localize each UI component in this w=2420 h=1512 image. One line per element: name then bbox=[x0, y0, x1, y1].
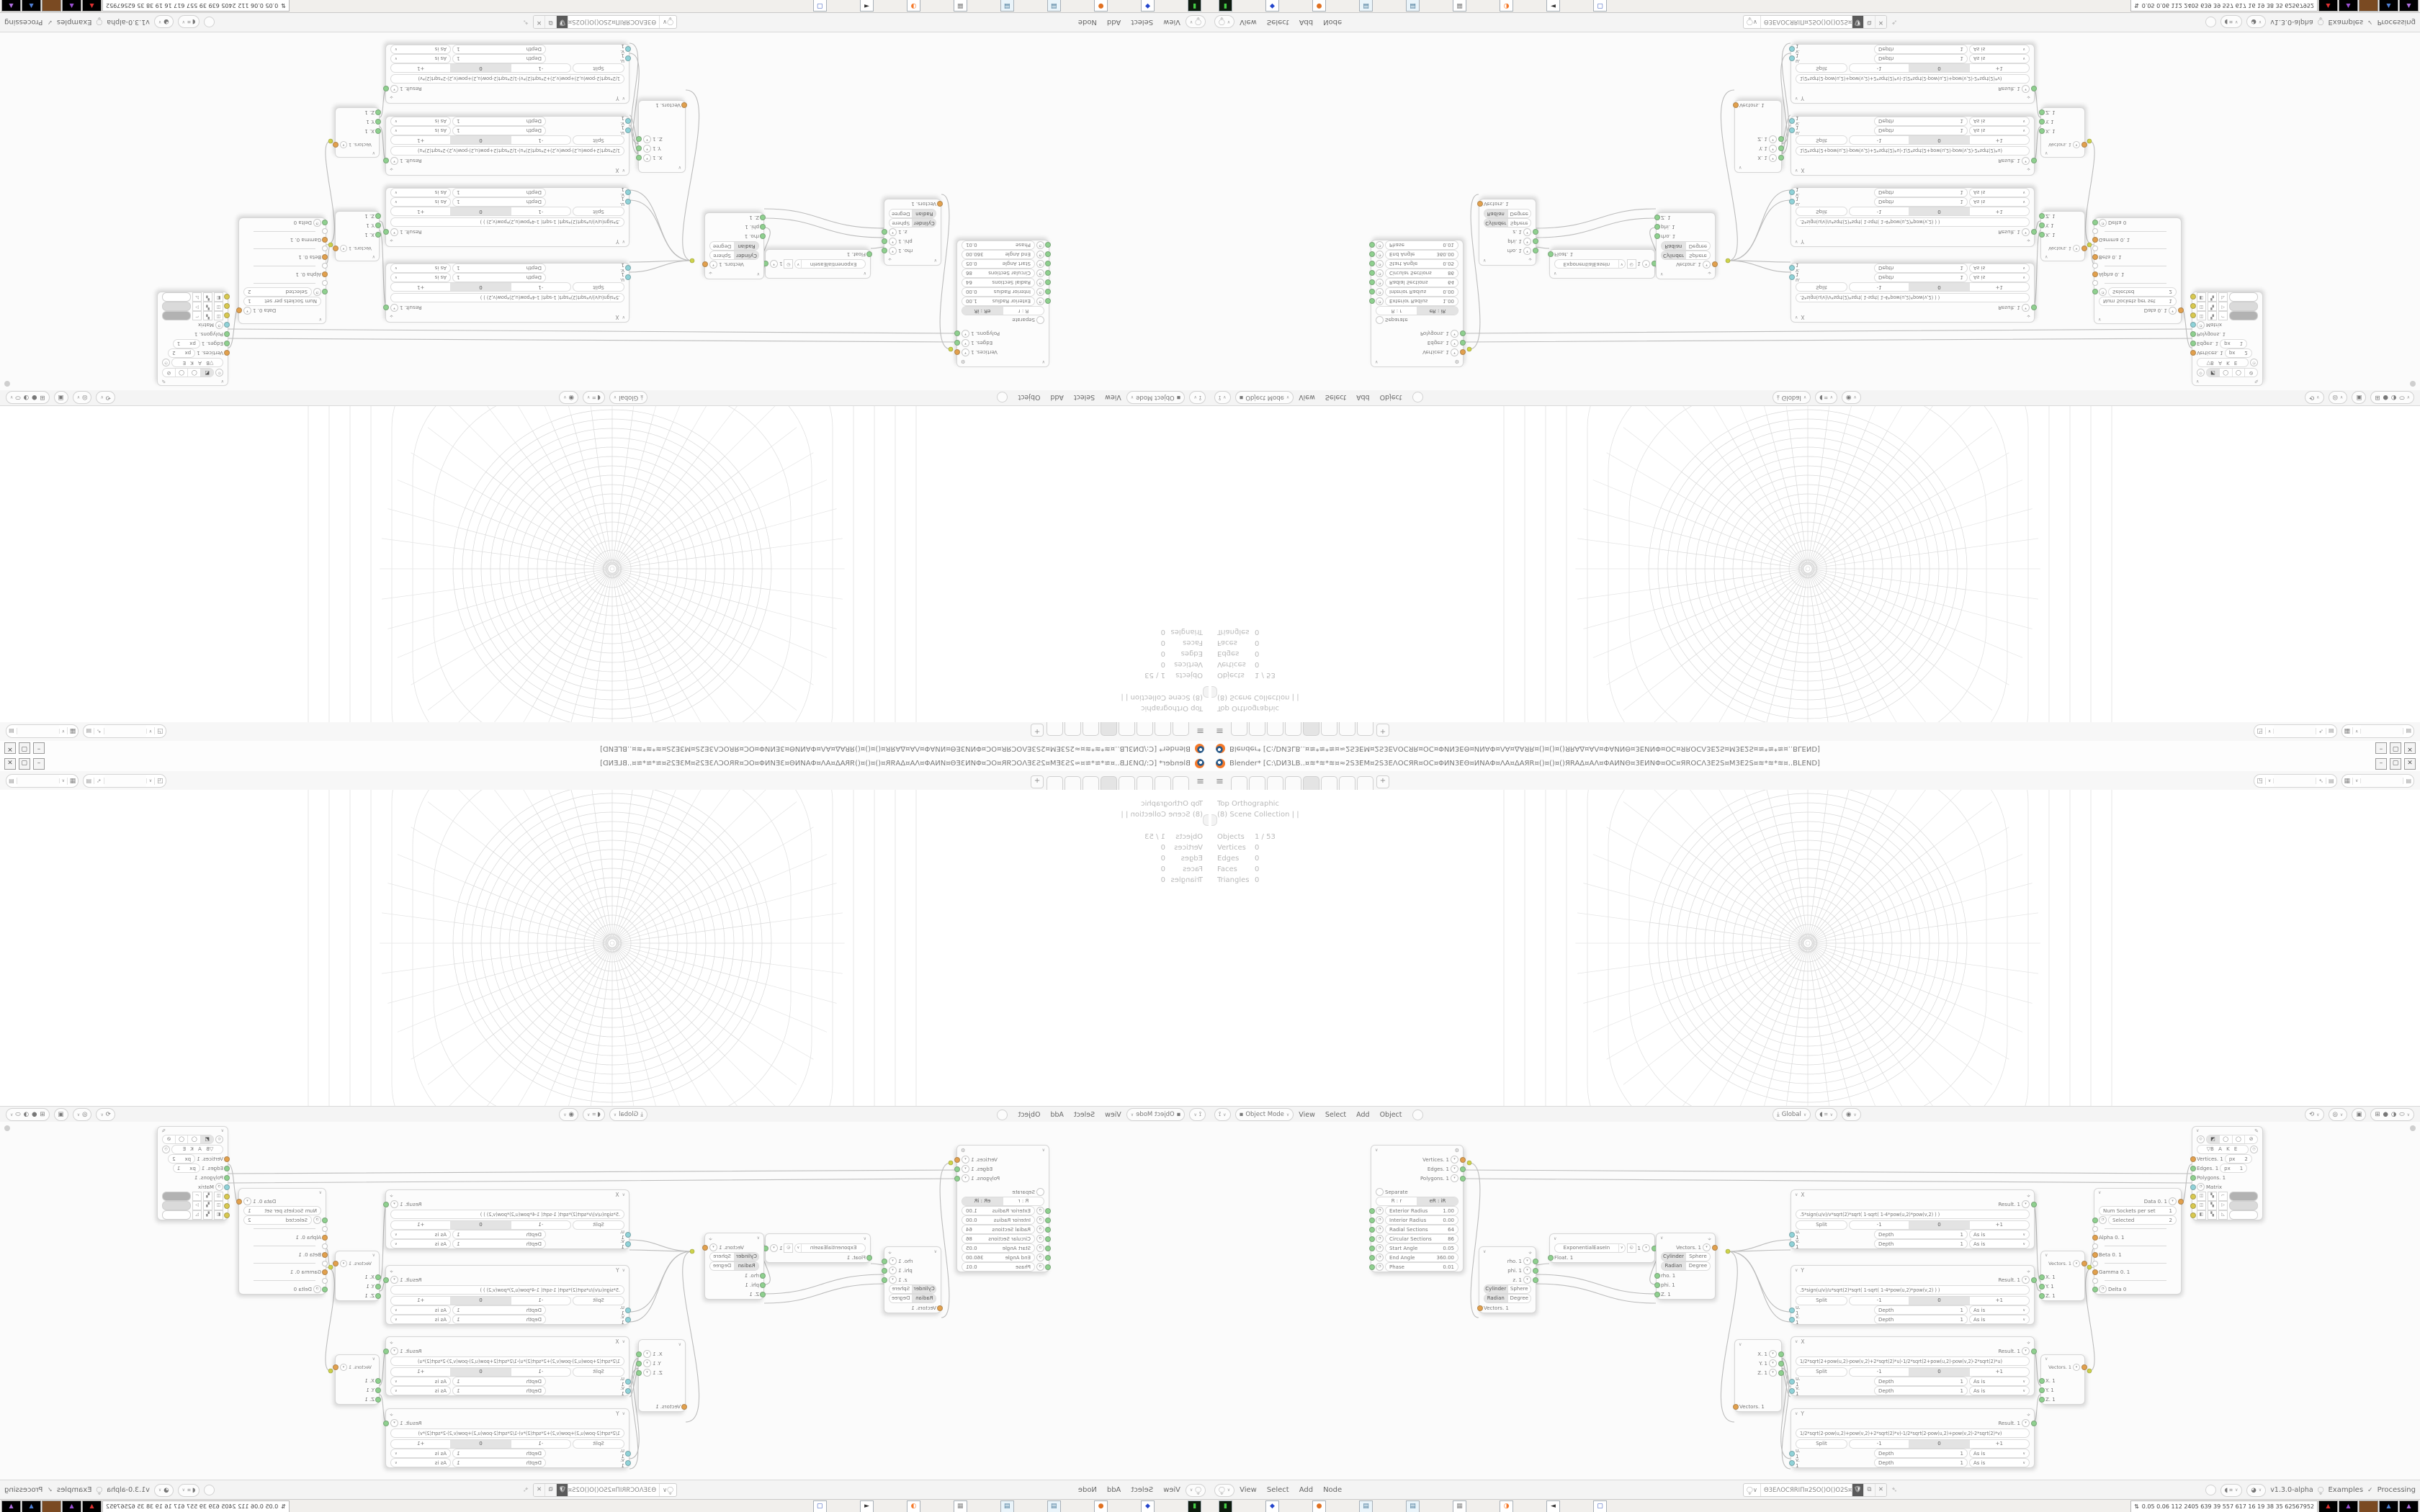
wrap-mode-dropdown[interactable]: As is∨ bbox=[390, 1386, 451, 1395]
node-vector-in-2[interactable]: ∨ Vectors. 1▾ X. 1 Y. 1 Z. 1 bbox=[335, 1354, 380, 1405]
menu-select[interactable]: Select bbox=[1074, 1111, 1095, 1119]
blank-circle-button[interactable] bbox=[204, 1485, 215, 1495]
socket-v-in[interactable] bbox=[1789, 1388, 1795, 1394]
curve-preview-icon[interactable]: ◵ bbox=[1627, 1243, 1636, 1253]
vertex-color-swatch[interactable] bbox=[162, 1192, 191, 1201]
offset-buttons[interactable]: -10+1 bbox=[390, 64, 571, 73]
wrap-mode-dropdown[interactable]: As is∨ bbox=[390, 45, 451, 54]
wrap-mode-dropdown[interactable]: As is∨ bbox=[1969, 1449, 2030, 1458]
new-layer-icon[interactable]: ▤ bbox=[2403, 778, 2414, 784]
socket-vectors-in[interactable] bbox=[1733, 1404, 1739, 1410]
window-icon[interactable]: ▢ bbox=[813, 1500, 827, 1512]
rendered-shading-icon[interactable]: ⬭ bbox=[15, 394, 20, 401]
close-button[interactable]: ✕ bbox=[4, 758, 16, 770]
offset-buttons[interactable]: -10+1 bbox=[390, 1296, 571, 1305]
menu-view[interactable]: View bbox=[1163, 18, 1180, 26]
node-vector-polar-output[interactable]: ∨⟓ rho. 1▾ phi. 1▾ z. 1▾ CylinderSphere … bbox=[884, 199, 941, 266]
socket-x-out[interactable] bbox=[1778, 155, 1784, 161]
formula-field[interactable]: 1/2*sqrt(2+pow(u,2)-pow(v,2)+2*sqrt(2)*u… bbox=[1796, 146, 2030, 156]
workspace-tab[interactable] bbox=[1065, 722, 1081, 736]
workspace-tab[interactable] bbox=[1065, 776, 1081, 790]
formula-field[interactable]: 1/2*sqrt(2+pow(u,2)-pow(v,2)+2*sqrt(2)*u… bbox=[390, 146, 624, 156]
fake-user-button[interactable]: 🛡 bbox=[557, 16, 568, 28]
socket-data-out[interactable] bbox=[237, 1199, 243, 1205]
tray-graph-violet[interactable]: ▲ bbox=[2399, 1500, 2419, 1512]
node-formula-y-1[interactable]: ∨Y⟓Result. 1▾.5*sign(u/v)/u*sqrt(2)*sqrt… bbox=[385, 1265, 629, 1325]
formula-field[interactable]: .5*sign(u/v)/u*sqrt(2)*sqrt( 1-sqrt( 1-4… bbox=[1796, 1285, 2030, 1295]
pin-icon[interactable]: ➴ bbox=[1891, 1486, 1897, 1494]
socket-u-in[interactable] bbox=[1789, 1451, 1795, 1457]
formula-field[interactable]: .5*sign(u/v)/v*sqrt(2)*sqrt( 1-sqrt( 1-4… bbox=[1796, 293, 2030, 302]
face-color-swatch[interactable] bbox=[2229, 292, 2258, 302]
end-angle-field[interactable]: End Angle360.00 bbox=[962, 250, 1035, 259]
workspace-tab[interactable] bbox=[1047, 776, 1063, 790]
menu-add[interactable]: Add bbox=[1356, 1111, 1369, 1119]
notepad-icon[interactable]: ▤ bbox=[1359, 1500, 1373, 1512]
workspace-tab[interactable] bbox=[1285, 722, 1301, 736]
socket-vectors-in[interactable] bbox=[1477, 1305, 1483, 1311]
workspace-tab[interactable] bbox=[1119, 776, 1135, 790]
menu-view[interactable]: View bbox=[1105, 1111, 1121, 1119]
collapse-icon[interactable]: ∨ bbox=[1042, 1148, 1045, 1153]
socket-delta-in[interactable] bbox=[2092, 1287, 2098, 1292]
scene-selector[interactable]: ◳ ∨ ➴ ▤ bbox=[2254, 774, 2336, 788]
socket-mode-icon[interactable]: ◔ bbox=[1376, 297, 1384, 305]
socket-z-out[interactable] bbox=[637, 136, 642, 142]
socket-vectors-out[interactable] bbox=[2081, 1364, 2087, 1370]
copy-tree-button[interactable]: ⧉ bbox=[1863, 1484, 1875, 1496]
3d-viewport[interactable]: Top Orthographic (8) Scene Collection | … bbox=[1210, 406, 2420, 722]
socket-vectors-out[interactable] bbox=[333, 142, 339, 148]
bake-button[interactable]: ▽B A K E bbox=[171, 1145, 223, 1154]
node-viewer-draw[interactable]: ∨✎ ◎◩◯◯⊘ ▽B A K E◷ Vertices. 1px2 Edges.… bbox=[2192, 292, 2263, 386]
examples-menu[interactable]: Examples bbox=[2328, 18, 2363, 26]
socket-edges-in[interactable] bbox=[2190, 1166, 2196, 1171]
menu-add[interactable]: Add bbox=[1356, 394, 1369, 402]
menu-node[interactable]: Node bbox=[1078, 18, 1097, 26]
socket-matrix-in[interactable] bbox=[2190, 322, 2196, 328]
offset-buttons[interactable]: -10+1 bbox=[1849, 1220, 2030, 1230]
socket-result-out[interactable] bbox=[2031, 1202, 2037, 1207]
socket-v-in[interactable] bbox=[1789, 1241, 1795, 1247]
notepad-icon[interactable]: ▤ bbox=[1000, 1500, 1014, 1512]
depth-field[interactable]: Depth1 bbox=[1874, 1458, 1968, 1467]
num-sockets-field[interactable]: Num Sockets per set1 bbox=[243, 297, 321, 306]
socket-phi-out[interactable] bbox=[882, 1268, 888, 1274]
tray-graph-brown[interactable]: ▮ bbox=[42, 0, 61, 12]
hamburger-menu-icon[interactable]: ≡ bbox=[1196, 776, 1204, 787]
menu-select[interactable]: Select bbox=[1267, 1486, 1289, 1494]
angle-unit-buttons[interactable]: RadianDegree bbox=[1484, 209, 1531, 218]
node-formula-x-0[interactable]: ∨X⟓Result. 1▾.5*sign(u/v)/v*sqrt(2)*sqrt… bbox=[1791, 263, 2035, 323]
menu-view[interactable]: View bbox=[1163, 1486, 1180, 1494]
wireframe-shading-icon[interactable]: ⊞ bbox=[40, 1111, 45, 1118]
mode-dropdown[interactable]: ▪Object Mode∨ bbox=[1235, 391, 1294, 404]
node-formula-y-1[interactable]: ∨Y⟓Result. 1▾.5*sign(u/v)/u*sqrt(2)*sqrt… bbox=[1791, 187, 2035, 247]
tray-graph-blue[interactable]: ▲ bbox=[2379, 0, 2398, 12]
socket-edges-out[interactable] bbox=[1460, 340, 1466, 346]
eye-toggle[interactable]: ◎ bbox=[215, 369, 223, 377]
socket-v-in[interactable] bbox=[1789, 1460, 1795, 1466]
socket-u-in[interactable] bbox=[1789, 127, 1795, 133]
node-tree-name[interactable]: Θ3EΛΟCЯRIΠ¤2SO()O()O2S¤ΠЯPOCΛ3EΘ bbox=[568, 19, 659, 26]
offset-buttons[interactable]: -10+1 bbox=[390, 1367, 571, 1377]
node-formula-y-1[interactable]: ∨Y⟓Result. 1▾.5*sign(u/v)/u*sqrt(2)*sqrt… bbox=[385, 187, 629, 247]
offset-buttons[interactable]: -10+1 bbox=[390, 283, 571, 292]
hamburger-menu-icon[interactable]: ≡ bbox=[1216, 725, 1224, 736]
gear-icon[interactable]: ⚙ bbox=[961, 1148, 965, 1153]
xray-toggle[interactable]: ▣ bbox=[2352, 391, 2366, 404]
workspace-tab[interactable] bbox=[1047, 722, 1063, 736]
selected-field[interactable]: Selected2 bbox=[243, 287, 312, 297]
workspace-tab[interactable] bbox=[1339, 722, 1355, 736]
depth-field[interactable]: Depth1 bbox=[452, 45, 546, 54]
socket-result-out[interactable] bbox=[2031, 305, 2037, 310]
menu-view[interactable]: View bbox=[1299, 1111, 1315, 1119]
socket-phi-in[interactable] bbox=[1654, 224, 1660, 230]
workspace-tab[interactable] bbox=[1303, 722, 1319, 736]
formula-field[interactable]: .5*sign(u/v)/u*sqrt(2)*sqrt( 1-sqrt( 1-4… bbox=[1796, 217, 2030, 227]
socket-float-in[interactable] bbox=[1548, 1255, 1554, 1261]
face-color-icon[interactable]: ◧ bbox=[2197, 1210, 2206, 1220]
chevron-down-icon[interactable]: ∨ bbox=[2353, 778, 2361, 783]
view-layer-field[interactable] bbox=[2361, 725, 2403, 737]
workspace-tab[interactable] bbox=[1231, 722, 1247, 736]
easing-mode-dropdown[interactable]: ExponentialEaseIn∨ bbox=[1554, 259, 1626, 269]
workspace-tab[interactable] bbox=[1155, 776, 1171, 790]
blender-icon[interactable]: ◑ bbox=[1500, 0, 1513, 12]
scene-name-field[interactable] bbox=[104, 775, 146, 787]
firefox-icon[interactable]: ● bbox=[1094, 1500, 1108, 1512]
end-angle-field[interactable]: End Angle360.00 bbox=[962, 1253, 1035, 1262]
menu-node[interactable]: Node bbox=[1078, 1486, 1097, 1494]
menu-node[interactable]: Node bbox=[1323, 18, 1342, 26]
solid-shading-icon[interactable]: ● bbox=[32, 1111, 37, 1118]
wrap-mode-dropdown[interactable]: As is∨ bbox=[1969, 273, 2030, 282]
menu-select[interactable]: Select bbox=[1267, 18, 1289, 26]
firefox-icon[interactable]: ● bbox=[1312, 1500, 1326, 1512]
socket-result-out[interactable] bbox=[2031, 86, 2037, 91]
socket-result-out[interactable] bbox=[2031, 229, 2037, 235]
add-workspace-button[interactable]: + bbox=[1031, 724, 1044, 737]
tray-graph-violet[interactable]: ▲ bbox=[1, 0, 21, 12]
eye-toggle[interactable]: ◎ bbox=[2197, 1135, 2205, 1143]
socket-z-in[interactable] bbox=[1654, 215, 1660, 220]
menu-object[interactable]: Object bbox=[1018, 1111, 1040, 1119]
tray-graph-red[interactable]: ▲ bbox=[2318, 0, 2338, 12]
speaker-icon[interactable]: ◄ bbox=[1546, 1500, 1560, 1512]
maximize-button[interactable]: ▢ bbox=[2390, 742, 2401, 754]
node-torus-generator[interactable]: ∨⚙ Vertices. 1▾ Edges. 1▾ Polygons. 1▾ S… bbox=[956, 1145, 1049, 1272]
socket-vertices-out[interactable] bbox=[1460, 1157, 1466, 1163]
proportional-editing-widget[interactable]: ◉∨ bbox=[1842, 1108, 1861, 1121]
socket-vertices-out[interactable] bbox=[955, 1157, 961, 1163]
socket-edges-in[interactable] bbox=[2190, 341, 2196, 346]
node-vector-in-2[interactable]: ∨ Vectors. 1▾ X. 1 Y. 1 Z. 1 bbox=[2040, 107, 2085, 158]
snap-widget[interactable]: ◖⌗∨ bbox=[2220, 16, 2243, 29]
wrap-mode-dropdown[interactable]: As is∨ bbox=[390, 197, 451, 207]
socket-edges-out[interactable] bbox=[955, 1166, 961, 1172]
close-button[interactable]: ✕ bbox=[2404, 742, 2416, 754]
firefox-icon[interactable]: ● bbox=[1312, 0, 1326, 12]
chevron-down-icon[interactable]: ∨ bbox=[59, 778, 67, 783]
socket-rho-out[interactable] bbox=[882, 248, 888, 253]
edge-color-swatch[interactable] bbox=[2229, 1201, 2258, 1210]
formula-field[interactable]: 1/2*sqrt(2-pow(u,2)+pow(v,2)+2*sqrt(2)*v… bbox=[1796, 74, 2030, 84]
node-socket-switcher[interactable]: ∨ Data 0. 1▾ Num Sockets per set1 ◔Selec… bbox=[2094, 217, 2182, 324]
socket-polygons-out[interactable] bbox=[955, 1176, 961, 1182]
editor-type-button[interactable]: ⧬∨ bbox=[1186, 16, 1206, 29]
depth-field[interactable]: Depth1 bbox=[452, 273, 546, 282]
minimize-button[interactable]: – bbox=[33, 742, 45, 754]
offset-buttons[interactable]: -10+1 bbox=[1849, 207, 2030, 217]
tray-graph-brown[interactable]: ▮ bbox=[42, 1500, 61, 1512]
clock-icon[interactable]: ◷ bbox=[162, 1146, 170, 1153]
sverchok-node-editor[interactable]: ∨⚙ Vertices. 1▾ Edges. 1▾ Polygons. 1▾ S… bbox=[0, 32, 1210, 390]
node-formula-y-3[interactable]: ∨Y⟓Result. 1▾1/2*sqrt(2-pow(u,2)+pow(v,2… bbox=[1791, 44, 2035, 104]
depth-field[interactable]: Depth1 bbox=[452, 264, 546, 273]
menu-view[interactable]: View bbox=[1105, 394, 1121, 402]
vertex-color-swatch[interactable] bbox=[2229, 311, 2258, 320]
scene-selector[interactable]: ◳ ∨ ➴ ▤ bbox=[83, 724, 166, 738]
rendered-shading-icon[interactable]: ⬭ bbox=[2399, 394, 2404, 401]
node-vector-polar-output[interactable]: ∨⟓ rho. 1▾ phi. 1▾ z. 1▾ CylinderSphere … bbox=[1479, 1246, 1536, 1313]
node-vector-in-1[interactable]: ∨ Vectors. 1▾ X. 1 Y. 1 Z. 1 bbox=[2040, 1251, 2085, 1301]
separate-toggle[interactable] bbox=[1036, 1188, 1044, 1196]
node-vector-decompose[interactable]: ∨ X. 1▾ Y. 1▾ Z. 1▾ Vectors. 1 bbox=[638, 100, 686, 173]
socket-z-out[interactable] bbox=[1533, 1277, 1538, 1283]
socket-vectors-out[interactable] bbox=[2081, 142, 2087, 148]
socket-u-in[interactable] bbox=[1789, 1379, 1795, 1385]
curve-preview-icon[interactable]: ◵ bbox=[784, 1243, 793, 1253]
collapse-icon[interactable]: ∨ bbox=[1375, 359, 1378, 364]
node-vector-in-2[interactable]: ∨ Vectors. 1▾ X. 1 Y. 1 Z. 1 bbox=[2040, 1354, 2085, 1405]
editor-type-button[interactable]: ⟟∨ bbox=[1214, 1108, 1231, 1121]
gizmo-dropdown[interactable]: ⟲∨ bbox=[97, 391, 116, 404]
depth-field[interactable]: Depth1 bbox=[452, 197, 546, 207]
maximize-button[interactable]: ▢ bbox=[2390, 758, 2401, 770]
blender-icon[interactable]: ◑ bbox=[907, 1500, 920, 1512]
depth-field[interactable]: Depth1 bbox=[1874, 1239, 1968, 1248]
node-tree-selector[interactable]: ⧬∨ Θ3EΛΟCЯRIΠ¤2SO()O()O2S¤ΠЯPOCΛ3EΘ 🛡 ⧉ … bbox=[1743, 15, 1887, 29]
wrap-mode-dropdown[interactable]: As is∨ bbox=[1969, 1315, 2030, 1324]
chevron-down-icon[interactable]: ∨ bbox=[146, 778, 154, 783]
pin-icon[interactable]: ➴ bbox=[94, 728, 104, 734]
unlink-tree-button[interactable]: ✕ bbox=[1875, 1484, 1886, 1496]
workspace-tab[interactable] bbox=[1137, 722, 1153, 736]
node-socket-switcher[interactable]: ∨ Data 0. 1▾ Num Sockets per set1 ◔Selec… bbox=[238, 1188, 326, 1295]
clock-icon[interactable]: ◷ bbox=[2250, 1146, 2258, 1153]
radial-sections-field[interactable]: Radial Sections64 bbox=[1385, 1225, 1458, 1234]
menu-view[interactable]: View bbox=[1240, 1486, 1257, 1494]
transform-orientation-dropdown[interactable]: ⤓Global∨ bbox=[1773, 391, 1811, 404]
socket-phi-out[interactable] bbox=[882, 238, 888, 244]
floppy-64-icon[interactable]: ◆ bbox=[1265, 0, 1279, 12]
socket-result-out[interactable] bbox=[384, 305, 390, 310]
snapping-widget[interactable]: ◖⌗∨ bbox=[1815, 1108, 1837, 1121]
socket-gamma-in[interactable] bbox=[2092, 1269, 2098, 1275]
offset-buttons[interactable]: -10+1 bbox=[1849, 1296, 2030, 1305]
separate-toggle[interactable] bbox=[1376, 316, 1384, 324]
shading-mode-buttons[interactable]: ⊞ ● ◑ ⬭ ∨ bbox=[2370, 391, 2414, 404]
proportional-editing-widget[interactable]: ◉∨ bbox=[559, 391, 578, 404]
face-color-swatch[interactable] bbox=[162, 292, 191, 302]
snap-widget[interactable]: ◖⌗∨ bbox=[178, 16, 200, 29]
phase-field[interactable]: Phase0.01 bbox=[1385, 1262, 1458, 1272]
depth-field[interactable]: Depth1 bbox=[1874, 1449, 1968, 1458]
formula-field[interactable]: 1/2*sqrt(2+pow(u,2)-pow(v,2)+2*sqrt(2)*u… bbox=[1796, 1356, 2030, 1366]
minimize-button[interactable]: – bbox=[2375, 742, 2387, 754]
socket-rho-in[interactable] bbox=[1654, 1273, 1660, 1279]
exterior-radius-field[interactable]: Exterior Radius1.00 bbox=[962, 297, 1035, 306]
easing-mode-dropdown[interactable]: ExponentialEaseIn∨ bbox=[794, 259, 866, 269]
start-angle-field[interactable]: Start Angle0.05 bbox=[962, 259, 1035, 269]
toolbar-collapse-handle[interactable] bbox=[1211, 686, 1217, 698]
toolbar-collapse-handle[interactable] bbox=[1203, 814, 1209, 826]
pencil-icon[interactable]: ✎ bbox=[2254, 1128, 2259, 1134]
radial-sections-field[interactable]: Radial Sections64 bbox=[1385, 278, 1458, 287]
image-viewer-icon[interactable]: ▦ bbox=[1453, 0, 1466, 12]
menu-add[interactable]: Add bbox=[1107, 1486, 1121, 1494]
workspace-tab[interactable] bbox=[1155, 722, 1171, 736]
radius-mode-buttons[interactable]: R : reR : iR bbox=[962, 1197, 1044, 1206]
node-formula-x-0[interactable]: ∨X⟓Result. 1▾.5*sign(u/v)/v*sqrt(2)*sqrt… bbox=[1791, 1189, 2035, 1249]
node-viewer-draw[interactable]: ∨✎ ◎◩◯◯⊘ ▽B A K E◷ Vertices. 1px2 Edges.… bbox=[157, 1126, 228, 1220]
rendered-shading-icon[interactable]: ⬭ bbox=[15, 1111, 20, 1118]
display-mode-buttons[interactable]: ◩◯◯⊘ bbox=[2206, 368, 2258, 377]
socket-vertices-out[interactable] bbox=[955, 349, 961, 355]
split-button[interactable]: Split bbox=[1796, 64, 1847, 73]
formula-field[interactable]: .5*sign(u/v)/u*sqrt(2)*sqrt( 1-sqrt( 1-4… bbox=[390, 217, 624, 227]
overlay-dropdown[interactable]: ◕∨ bbox=[154, 16, 174, 29]
node-vector-polar-input[interactable]: ∨⟓ Vectors. 1▾ CylinderSphere RadianDegr… bbox=[704, 1233, 764, 1300]
node-formula-y-3[interactable]: ∨Y⟓Result. 1▾1/2*sqrt(2-pow(u,2)+pow(v,2… bbox=[385, 1408, 629, 1468]
socket-edges-out[interactable] bbox=[1460, 1166, 1466, 1172]
annotation-button[interactable] bbox=[1412, 392, 1423, 403]
examples-menu[interactable]: Examples bbox=[57, 1486, 92, 1494]
gear-icon[interactable]: ⚙ bbox=[961, 359, 965, 365]
editor-type-button[interactable]: ⧬∨ bbox=[1214, 16, 1234, 29]
node-vector-in-1[interactable]: ∨ Vectors. 1▾ X. 1 Y. 1 Z. 1 bbox=[335, 211, 380, 261]
snapping-widget[interactable]: ◖⌗∨ bbox=[583, 391, 605, 404]
menu-select[interactable]: Select bbox=[1325, 394, 1346, 402]
tray-graph-brown[interactable]: ▮ bbox=[2359, 1500, 2378, 1512]
solid-display-icon[interactable]: ◩ bbox=[2207, 369, 2220, 377]
clock-icon[interactable]: ◷ bbox=[162, 359, 170, 367]
wrap-mode-dropdown[interactable]: As is∨ bbox=[1969, 126, 2030, 135]
depth-field[interactable]: Depth1 bbox=[1874, 1230, 1968, 1239]
socket-y-out[interactable] bbox=[1778, 1361, 1784, 1367]
exterior-radius-field[interactable]: Exterior Radius1.00 bbox=[1385, 297, 1458, 306]
interior-radius-field[interactable]: Interior Radius0.00 bbox=[1385, 1215, 1458, 1225]
socket-data-out[interactable] bbox=[2178, 1199, 2184, 1205]
socket-u-in[interactable] bbox=[1789, 274, 1795, 280]
processing-toggle-label[interactable]: Processing bbox=[4, 1486, 42, 1494]
depth-field[interactable]: Depth1 bbox=[1874, 117, 1968, 126]
node-torus-generator[interactable]: ∨⚙ Vertices. 1▾ Edges. 1▾ Polygons. 1▾ S… bbox=[1371, 240, 1464, 367]
socket-vectors-out[interactable] bbox=[703, 261, 709, 267]
selected-field[interactable]: Selected2 bbox=[2108, 287, 2177, 297]
workspace-tab[interactable] bbox=[1285, 776, 1301, 790]
socket-alpha-in[interactable] bbox=[2092, 271, 2098, 277]
new-scene-icon[interactable]: ▤ bbox=[84, 778, 94, 784]
socket-result-out[interactable] bbox=[384, 158, 390, 163]
formula-field[interactable]: .5*sign(u/v)/v*sqrt(2)*sqrt( 1-sqrt( 1-4… bbox=[390, 1210, 624, 1219]
blank-circle-button[interactable] bbox=[2205, 17, 2216, 27]
sidebar-toggle-dot[interactable] bbox=[4, 1125, 10, 1131]
tray-graph-red[interactable]: ▲ bbox=[82, 0, 102, 12]
formula-field[interactable]: 1/2*sqrt(2-pow(u,2)+pow(v,2)+2*sqrt(2)*v… bbox=[390, 74, 624, 84]
vertex-color-swatch[interactable] bbox=[162, 311, 191, 320]
socket-vectors-out[interactable] bbox=[333, 1364, 339, 1370]
edge-color-icon[interactable]: ◫ bbox=[2197, 302, 2206, 311]
blank-circle-button[interactable] bbox=[204, 17, 215, 27]
wrap-mode-dropdown[interactable]: As is∨ bbox=[1969, 188, 2030, 197]
coordinate-mode-buttons[interactable]: CylinderSphere bbox=[889, 1284, 936, 1294]
snap-widget[interactable]: ◖⌗∨ bbox=[178, 1484, 200, 1497]
selected-field[interactable]: Selected2 bbox=[2108, 1215, 2177, 1225]
blender-icon[interactable]: ◑ bbox=[1500, 1500, 1513, 1512]
socket-u-in[interactable] bbox=[1789, 1308, 1795, 1313]
easing-mode-dropdown[interactable]: ExponentialEaseIn∨ bbox=[1554, 1243, 1626, 1253]
socket-result-out[interactable] bbox=[384, 1202, 390, 1207]
wrap-mode-dropdown[interactable]: As is∨ bbox=[390, 1449, 451, 1458]
wrap-mode-dropdown[interactable]: As is∨ bbox=[1969, 264, 2030, 273]
notepad-icon[interactable]: ▤ bbox=[1000, 0, 1014, 12]
speaker-icon[interactable]: ◄ bbox=[860, 0, 874, 12]
depth-field[interactable]: Depth1 bbox=[452, 54, 546, 63]
socket-rho-out[interactable] bbox=[1533, 248, 1538, 253]
socket-y-out[interactable] bbox=[637, 145, 642, 151]
image-viewer-icon[interactable]: ▦ bbox=[954, 1500, 967, 1512]
close-button[interactable]: ✕ bbox=[4, 742, 16, 754]
sverchok-node-editor[interactable]: ∨⚙ Vertices. 1▾ Edges. 1▾ Polygons. 1▾ S… bbox=[0, 1122, 1210, 1480]
wrap-mode-dropdown[interactable]: As is∨ bbox=[1969, 1230, 2030, 1239]
sidebar-toggle-dot[interactable] bbox=[4, 381, 10, 387]
chevron-down-icon[interactable]: ∨ bbox=[59, 729, 67, 734]
socket-polygons-out[interactable] bbox=[1460, 330, 1466, 336]
rendered-shading-icon[interactable]: ⬭ bbox=[2399, 1111, 2404, 1118]
node-formula-y-1[interactable]: ∨Y⟓Result. 1▾.5*sign(u/v)/u*sqrt(2)*sqrt… bbox=[1791, 1265, 2035, 1325]
floppy-64-icon[interactable]: ◆ bbox=[1141, 0, 1155, 12]
socket-result-out[interactable] bbox=[384, 1277, 390, 1283]
depth-field[interactable]: Depth1 bbox=[452, 188, 546, 197]
floppy-64-icon[interactable]: ◆ bbox=[1141, 1500, 1155, 1512]
clock-icon[interactable]: ◷ bbox=[2250, 359, 2258, 367]
node-vector-polar-input[interactable]: ∨⟓ Vectors. 1▾ CylinderSphere RadianDegr… bbox=[1656, 212, 1716, 279]
material-shading-icon[interactable]: ◑ bbox=[2391, 394, 2396, 401]
processing-toggle-label[interactable]: Processing bbox=[2378, 18, 2416, 26]
split-button[interactable]: Split bbox=[573, 283, 624, 292]
terminal-icon[interactable]: ▮ bbox=[1188, 1500, 1201, 1512]
node-formula-y-3[interactable]: ∨Y⟓Result. 1▾1/2*sqrt(2-pow(u,2)+pow(v,2… bbox=[1791, 1408, 2035, 1468]
depth-field[interactable]: Depth1 bbox=[452, 1458, 546, 1467]
proportional-editing-widget[interactable]: ◉∨ bbox=[1842, 391, 1861, 404]
wrap-mode-dropdown[interactable]: As is∨ bbox=[1969, 1386, 2030, 1395]
processing-toggle-label[interactable]: Processing bbox=[4, 18, 42, 26]
sidebar-toggle-dot[interactable] bbox=[2410, 381, 2416, 387]
tray-graph-blue[interactable]: ▲ bbox=[22, 1500, 41, 1512]
check-icon[interactable]: ✓ bbox=[47, 1487, 53, 1494]
formula-field[interactable]: 1/2*sqrt(2-pow(u,2)+pow(v,2)+2*sqrt(2)*v… bbox=[1796, 1428, 2030, 1438]
mode-dropdown[interactable]: ▪Object Mode∨ bbox=[1126, 391, 1186, 404]
split-button[interactable]: Split bbox=[1796, 207, 1847, 217]
add-workspace-button[interactable]: + bbox=[1031, 775, 1044, 788]
socket-result-out[interactable] bbox=[384, 1349, 390, 1354]
socket-y-out[interactable] bbox=[1778, 145, 1784, 151]
overlays-dropdown[interactable]: ◎∨ bbox=[2329, 391, 2348, 404]
socket-vectors-out[interactable] bbox=[333, 1261, 339, 1266]
